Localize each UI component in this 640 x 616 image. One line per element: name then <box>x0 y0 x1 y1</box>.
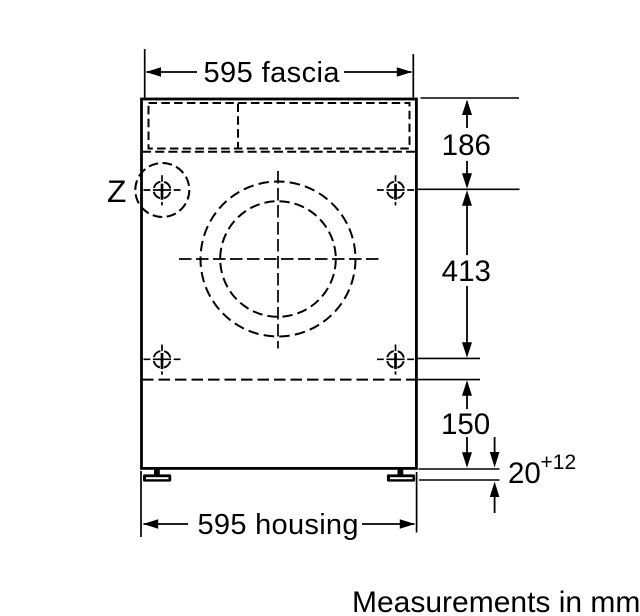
svg-text:595 housing: 595 housing <box>198 509 359 541</box>
svg-text:+12: +12 <box>541 451 577 474</box>
svg-text:595 fascia: 595 fascia <box>204 57 341 89</box>
svg-text:20: 20 <box>508 457 541 490</box>
svg-text:186: 186 <box>442 129 491 162</box>
svg-text:Measurements in mm: Measurements in mm <box>352 586 640 616</box>
svg-text:413: 413 <box>442 255 491 288</box>
svg-text:Z: Z <box>107 173 126 209</box>
svg-text:150: 150 <box>441 408 490 441</box>
